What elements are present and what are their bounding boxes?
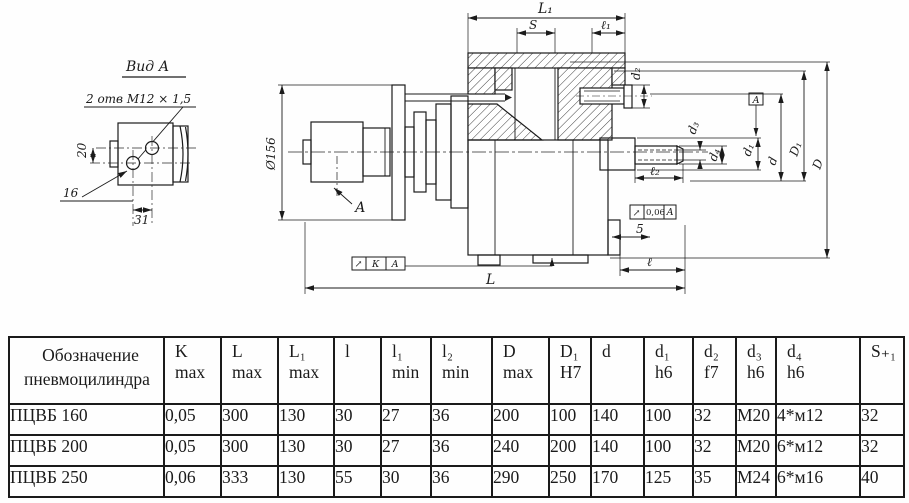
tolerance-frame-runout-K: ↗ К А <box>352 257 552 270</box>
spec-value: 200 <box>492 404 549 435</box>
spec-value: 32 <box>860 435 904 466</box>
tolerance-value-K: К <box>371 259 380 270</box>
col-label: L₁ <box>289 341 306 361</box>
spec-value: 200 <box>549 435 591 466</box>
col-sublabel: h6 <box>655 362 690 383</box>
col-sublabel: max <box>175 362 218 383</box>
table-row: ПЦВБ 1600,0530013030273620010014010032М2… <box>9 404 904 435</box>
col-label: K <box>175 341 188 361</box>
spec-value: 0,06 <box>164 466 221 497</box>
col-header-d₂: d₂f7 <box>693 337 736 404</box>
spec-value: М20 <box>736 435 776 466</box>
table-row: ПЦВБ 2500,0633313055303629025017012535М2… <box>9 466 904 497</box>
col-header-l₂: l₂min <box>431 337 492 404</box>
spec-value: 4*м12 <box>776 404 860 435</box>
spec-value: 0,05 <box>164 435 221 466</box>
spec-value: 240 <box>492 435 549 466</box>
holes-leader-line <box>131 107 183 167</box>
col-label: Обозначение <box>20 341 161 367</box>
col-label: d₃ <box>747 341 762 361</box>
spec-value: 30 <box>334 404 381 435</box>
col-label: d₂ <box>704 341 719 361</box>
datum-flag-label: А <box>752 95 760 106</box>
dim-label-16: 16 <box>63 186 79 200</box>
spec-value: М24 <box>736 466 776 497</box>
cylinder-designation: ПЦВБ 200 <box>9 435 164 466</box>
technical-drawing: Вид А 2 отв М12 × 1,5 20 <box>0 0 909 334</box>
dim-label-l2: ℓ₂ <box>650 164 660 178</box>
spec-value: 100 <box>644 404 693 435</box>
col-sublabel: max <box>503 362 546 383</box>
tolerance-datum-ref: А <box>666 207 674 218</box>
spec-value: 30 <box>334 435 381 466</box>
col-label: d₁ <box>655 341 670 361</box>
spec-value: 32 <box>860 404 904 435</box>
spec-value: 6*м12 <box>776 435 860 466</box>
spec-value: 140 <box>591 404 644 435</box>
spec-value: 290 <box>492 466 549 497</box>
col-label: L <box>232 341 243 361</box>
spec-value: 130 <box>278 435 334 466</box>
spec-value: 27 <box>381 435 431 466</box>
view-a: Вид А 2 отв М12 × 1,5 20 <box>60 59 198 227</box>
spec-value: 6*м16 <box>776 466 860 497</box>
dim-label-d2: d₂ <box>629 67 643 80</box>
col-header-L₁: L₁max <box>278 337 334 404</box>
dim-label-S: S <box>529 18 537 32</box>
flange-plate <box>392 85 405 220</box>
spec-table-head: ОбозначениепневмоцилиндраKmaxLmaxL₁maxll… <box>9 337 904 404</box>
spec-value: 30 <box>381 466 431 497</box>
col-header-d₁: d₁h6 <box>644 337 693 404</box>
spec-value: 300 <box>221 404 278 435</box>
dim-label-l: ℓ <box>647 255 652 269</box>
dim-label-dia156: Ø156 <box>264 137 278 171</box>
col-header-S₊₁: S₊₁ <box>860 337 904 404</box>
col-label: D <box>503 341 516 361</box>
col-header-d: d <box>591 337 644 404</box>
spec-value: 0,05 <box>164 404 221 435</box>
dim-label-D: D <box>809 157 826 172</box>
spec-value: 140 <box>591 435 644 466</box>
dim-label-L1: L₁ <box>537 1 553 17</box>
col-header-d₃: d₃h6 <box>736 337 776 404</box>
dim-label-l1: ℓ₁ <box>601 18 611 32</box>
spec-value: 55 <box>334 466 381 497</box>
col-header-K: Kmax <box>164 337 221 404</box>
spec-value: М20 <box>736 404 776 435</box>
spec-value: 27 <box>381 404 431 435</box>
rod-tip <box>505 94 512 101</box>
dim-label-31: 31 <box>134 213 149 227</box>
spec-value: 130 <box>278 404 334 435</box>
col-sublabel: h6 <box>747 362 773 383</box>
dim-label-D1: D₁ <box>786 140 804 159</box>
spec-value: 100 <box>549 404 591 435</box>
col-label: D₁ <box>560 341 579 361</box>
col-sublabel: пневмоцилиндра <box>20 367 161 391</box>
col-sublabel: min <box>442 362 489 383</box>
col-label: l <box>345 341 350 361</box>
col-sublabel: max <box>232 362 275 383</box>
drawing-area: Вид А 2 отв М12 × 1,5 20 <box>0 0 909 334</box>
tolerance-datum-ref: А <box>391 259 399 270</box>
spec-table-area: ОбозначениепневмоцилиндраKmaxLmaxL₁maxll… <box>8 336 905 498</box>
shaft-end <box>635 146 677 164</box>
spec-table-body: ПЦВБ 1600,0530013030273620010014010032М2… <box>9 404 904 497</box>
dim-label-d4: d₄ <box>706 146 723 163</box>
header-row: ОбозначениепневмоцилиндраKmaxLmaxL₁maxll… <box>9 337 904 404</box>
col-header-l: l <box>334 337 381 404</box>
col-sublabel: h6 <box>787 362 857 383</box>
spec-value: 170 <box>591 466 644 497</box>
col-sublabel: H7 <box>560 362 588 383</box>
spec-value: 100 <box>644 435 693 466</box>
col-sublabel: f7 <box>704 362 733 383</box>
table-row: ПЦВБ 2000,0530013030273624020014010032М2… <box>9 435 904 466</box>
col-label: l₂ <box>442 341 453 361</box>
col-header-D₁: D₁H7 <box>549 337 591 404</box>
runout-icon: ↗ <box>633 208 641 219</box>
main-view: Ø156 А <box>264 1 830 294</box>
dim-label-d1: d₁ <box>740 141 757 158</box>
spec-value: 32 <box>693 404 736 435</box>
spec-value: 36 <box>431 404 492 435</box>
cylinder-designation: ПЦВБ 250 <box>9 466 164 497</box>
head-flange-section <box>468 53 625 68</box>
col-sublabel: max <box>289 362 331 383</box>
tolerance-frame-runout-value: ↗ 0,06 А <box>630 205 676 219</box>
shaft-large <box>600 138 635 170</box>
col-header-D: Dmax <box>492 337 549 404</box>
spec-value: 36 <box>431 466 492 497</box>
dim-label-d: d <box>765 155 781 167</box>
tolerance-value: 0,06 <box>646 208 665 218</box>
col-header-designation: Обозначениепневмоцилиндра <box>9 337 164 404</box>
view-a-endcap <box>173 126 188 182</box>
spec-value: 32 <box>693 435 736 466</box>
spec-value: 125 <box>644 466 693 497</box>
view-a-title: Вид А <box>125 59 169 75</box>
runout-icon: ↗ <box>355 259 363 270</box>
col-sublabel: min <box>392 362 428 383</box>
spec-value: 40 <box>860 466 904 497</box>
holes-note: 2 отв М12 × 1,5 <box>85 92 191 106</box>
cylinder-body <box>468 140 608 255</box>
dim-label-20: 20 <box>75 142 89 159</box>
spec-value: 250 <box>549 466 591 497</box>
col-header-d₄: d₄h6 <box>776 337 860 404</box>
dim-label-L: L <box>485 272 495 288</box>
view-a-body <box>118 123 173 185</box>
spec-value: 35 <box>693 466 736 497</box>
stub-fitting <box>580 88 624 104</box>
spec-value: 333 <box>221 466 278 497</box>
spec-value: 36 <box>431 435 492 466</box>
view-arrow-label: А <box>354 200 366 216</box>
dim-label-5: 5 <box>636 222 644 236</box>
cylinder-designation: ПЦВБ 160 <box>9 404 164 435</box>
col-label: S₊₁ <box>871 341 896 361</box>
col-label: d₄ <box>787 341 802 361</box>
spec-value: 130 <box>278 466 334 497</box>
col-header-l₁: l₁min <box>381 337 431 404</box>
col-header-L: Lmax <box>221 337 278 404</box>
dim-label-d3: d₃ <box>685 119 702 136</box>
col-label: l₁ <box>392 341 403 361</box>
spec-value: 300 <box>221 435 278 466</box>
col-label: d <box>602 341 611 361</box>
spec-table: ОбозначениепневмоцилиндраKmaxLmaxL₁maxll… <box>8 336 905 498</box>
scanned-drawing-page: Вид А 2 отв М12 × 1,5 20 <box>0 0 909 503</box>
